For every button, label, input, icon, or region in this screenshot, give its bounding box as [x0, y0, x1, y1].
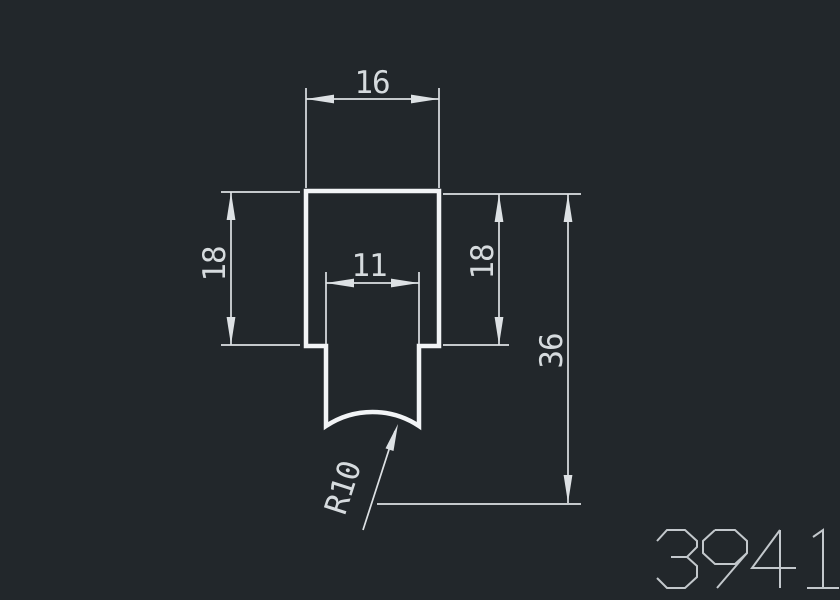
- dim-right-height-label: 18: [465, 244, 501, 279]
- dim-top-width-label: 16: [354, 65, 389, 101]
- dim-slot-width-label: 11: [351, 248, 386, 284]
- cad-canvas: 16 18 11 18: [0, 0, 840, 600]
- dim-total-height-label: 36: [534, 333, 570, 368]
- dim-left-height-label: 18: [197, 246, 233, 281]
- cad-drawing-viewport: 16 18 11 18: [0, 0, 840, 600]
- drawing-background: [0, 0, 840, 600]
